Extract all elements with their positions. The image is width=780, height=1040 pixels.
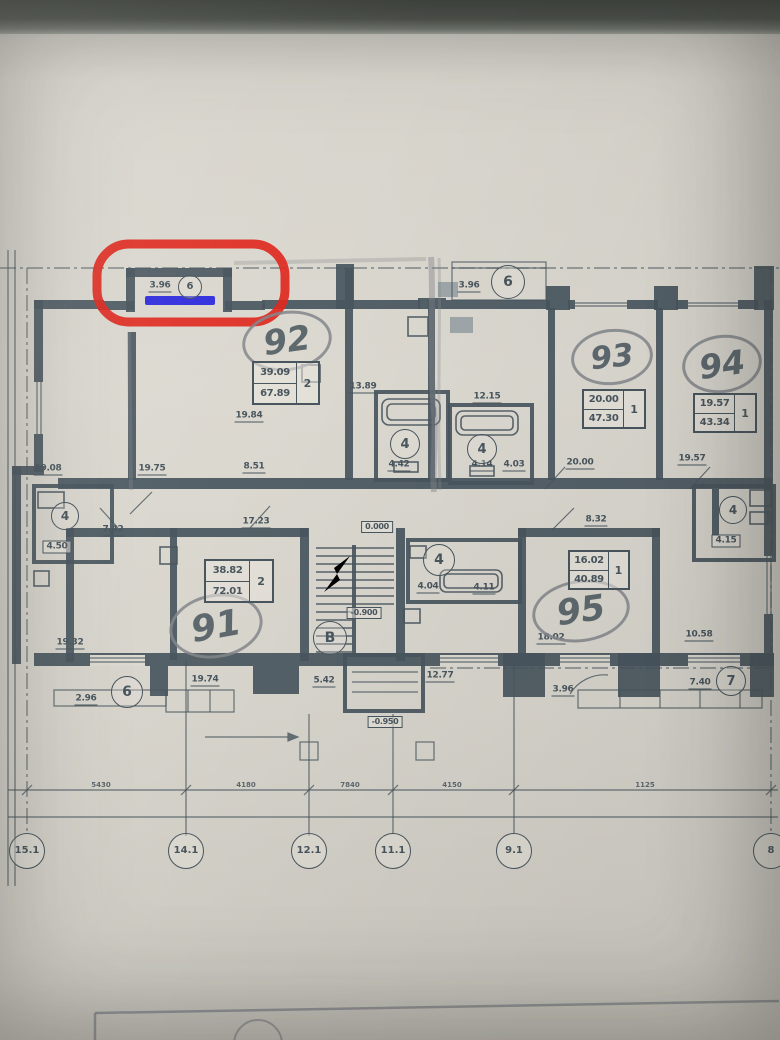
dimension-label: 4.42 <box>387 461 410 472</box>
dimension-label: 12.15 <box>473 393 502 404</box>
living-area-value: 39.09 <box>254 363 296 384</box>
dimension-label: 4.50 <box>42 541 71 554</box>
circled-room-label: 6 <box>111 676 143 708</box>
grid-axis-bubble: 15.1 <box>9 833 45 869</box>
plan-labels-layer: 3.963.9619.0819.758.5113.8919.844.424.14… <box>0 0 780 1040</box>
apartment-area-table: 20.0047.301 <box>582 389 646 429</box>
room-count: 2 <box>250 561 272 601</box>
total-area-value: 43.34 <box>695 414 734 432</box>
photo-of-floor-plan: 3.963.9619.0819.758.5113.8919.844.424.14… <box>0 0 780 1040</box>
apartment-areas: 16.0240.89 <box>570 552 609 588</box>
dimension-label: 10.58 <box>685 631 714 642</box>
dimension-label: 12.77 <box>426 672 455 683</box>
apartment-area-table: 39.0967.892 <box>252 361 320 405</box>
dimension-label: 19.57 <box>678 455 707 466</box>
dimension-label: 19.75 <box>138 465 167 476</box>
apartment-oval-number: 93 <box>568 325 655 389</box>
circled-room-label: 6 <box>178 275 202 299</box>
room-count: 1 <box>609 552 628 588</box>
dimension-label: 2.96 <box>74 695 97 706</box>
grid-axis-bubble: 8 <box>753 833 780 869</box>
dimension-label: 4.03 <box>502 461 525 472</box>
level-mark: -0.950 <box>368 716 403 728</box>
apartment-area-table: 19.5743.341 <box>693 393 757 433</box>
total-area-value: 47.30 <box>584 410 623 428</box>
level-mark: 0.000 <box>361 521 393 533</box>
circled-room-label: 4 <box>390 429 420 459</box>
bottom-dimension: 1125 <box>635 781 654 789</box>
apartment-oval-number: 94 <box>678 330 765 399</box>
circled-room-label: 4 <box>423 544 455 576</box>
dimension-label: 8.51 <box>242 463 265 474</box>
bottom-dimension: 7840 <box>340 781 359 789</box>
circled-room-label: 4 <box>467 434 497 464</box>
total-area-value: 67.89 <box>254 384 296 404</box>
grid-axis-bubble: 12.1 <box>291 833 327 869</box>
dimension-label: 19.08 <box>34 465 63 476</box>
grid-axis-bubble: 14.1 <box>168 833 204 869</box>
apartment-area-table: 38.8272.012 <box>204 559 274 603</box>
dimension-label: 4.15 <box>711 535 740 548</box>
room-count: 1 <box>624 391 644 427</box>
dimension-label: 20.00 <box>566 459 595 470</box>
total-area-value: 72.01 <box>206 582 249 602</box>
dimension-label: 4.11 <box>472 584 495 595</box>
dimension-label: 13.89 <box>349 383 378 394</box>
dimension-label: 8.32 <box>584 516 607 527</box>
dimension-label: 19.32 <box>56 639 85 650</box>
grid-axis-bubble: 11.1 <box>375 833 411 869</box>
living-area-value: 20.00 <box>584 391 623 410</box>
dimension-label: 3.96 <box>148 282 171 293</box>
apartment-areas: 20.0047.30 <box>584 391 624 427</box>
dimension-label: 4.04 <box>416 583 439 594</box>
dimension-label: 19.84 <box>235 412 264 423</box>
total-area-value: 40.89 <box>570 571 608 589</box>
circled-room-label: 6 <box>491 265 525 299</box>
level-mark: -0.900 <box>347 607 382 619</box>
bottom-dimension: 4150 <box>442 781 461 789</box>
apartment-area-table: 16.0240.891 <box>568 550 630 590</box>
apartment-areas: 19.5743.34 <box>695 395 735 431</box>
dimension-label: 5.42 <box>312 677 335 688</box>
bottom-dimension: 4180 <box>236 781 255 789</box>
room-count: 1 <box>735 395 755 431</box>
circled-room-label: В <box>313 621 347 655</box>
dimension-label: 7.42 <box>101 526 124 537</box>
dimension-label: 3.96 <box>457 282 480 293</box>
circled-room-label: 4 <box>719 496 747 524</box>
living-area-value: 38.82 <box>206 561 249 582</box>
circled-room-label: 4 <box>51 502 79 530</box>
living-area-value: 16.02 <box>570 552 608 571</box>
circled-room-label: 7 <box>716 666 746 696</box>
apartment-areas: 39.0967.89 <box>254 363 297 403</box>
apartment-areas: 38.8272.01 <box>206 561 250 601</box>
room-count: 2 <box>297 363 318 403</box>
dimension-label: 17.23 <box>242 518 271 529</box>
grid-axis-bubble: 9.1 <box>496 833 532 869</box>
living-area-value: 19.57 <box>695 395 734 414</box>
bottom-dimension: 5430 <box>91 781 110 789</box>
dimension-label: 7.40 <box>688 679 711 690</box>
dimension-label: 3.96 <box>551 686 574 697</box>
dimension-label: 19.74 <box>191 676 220 687</box>
